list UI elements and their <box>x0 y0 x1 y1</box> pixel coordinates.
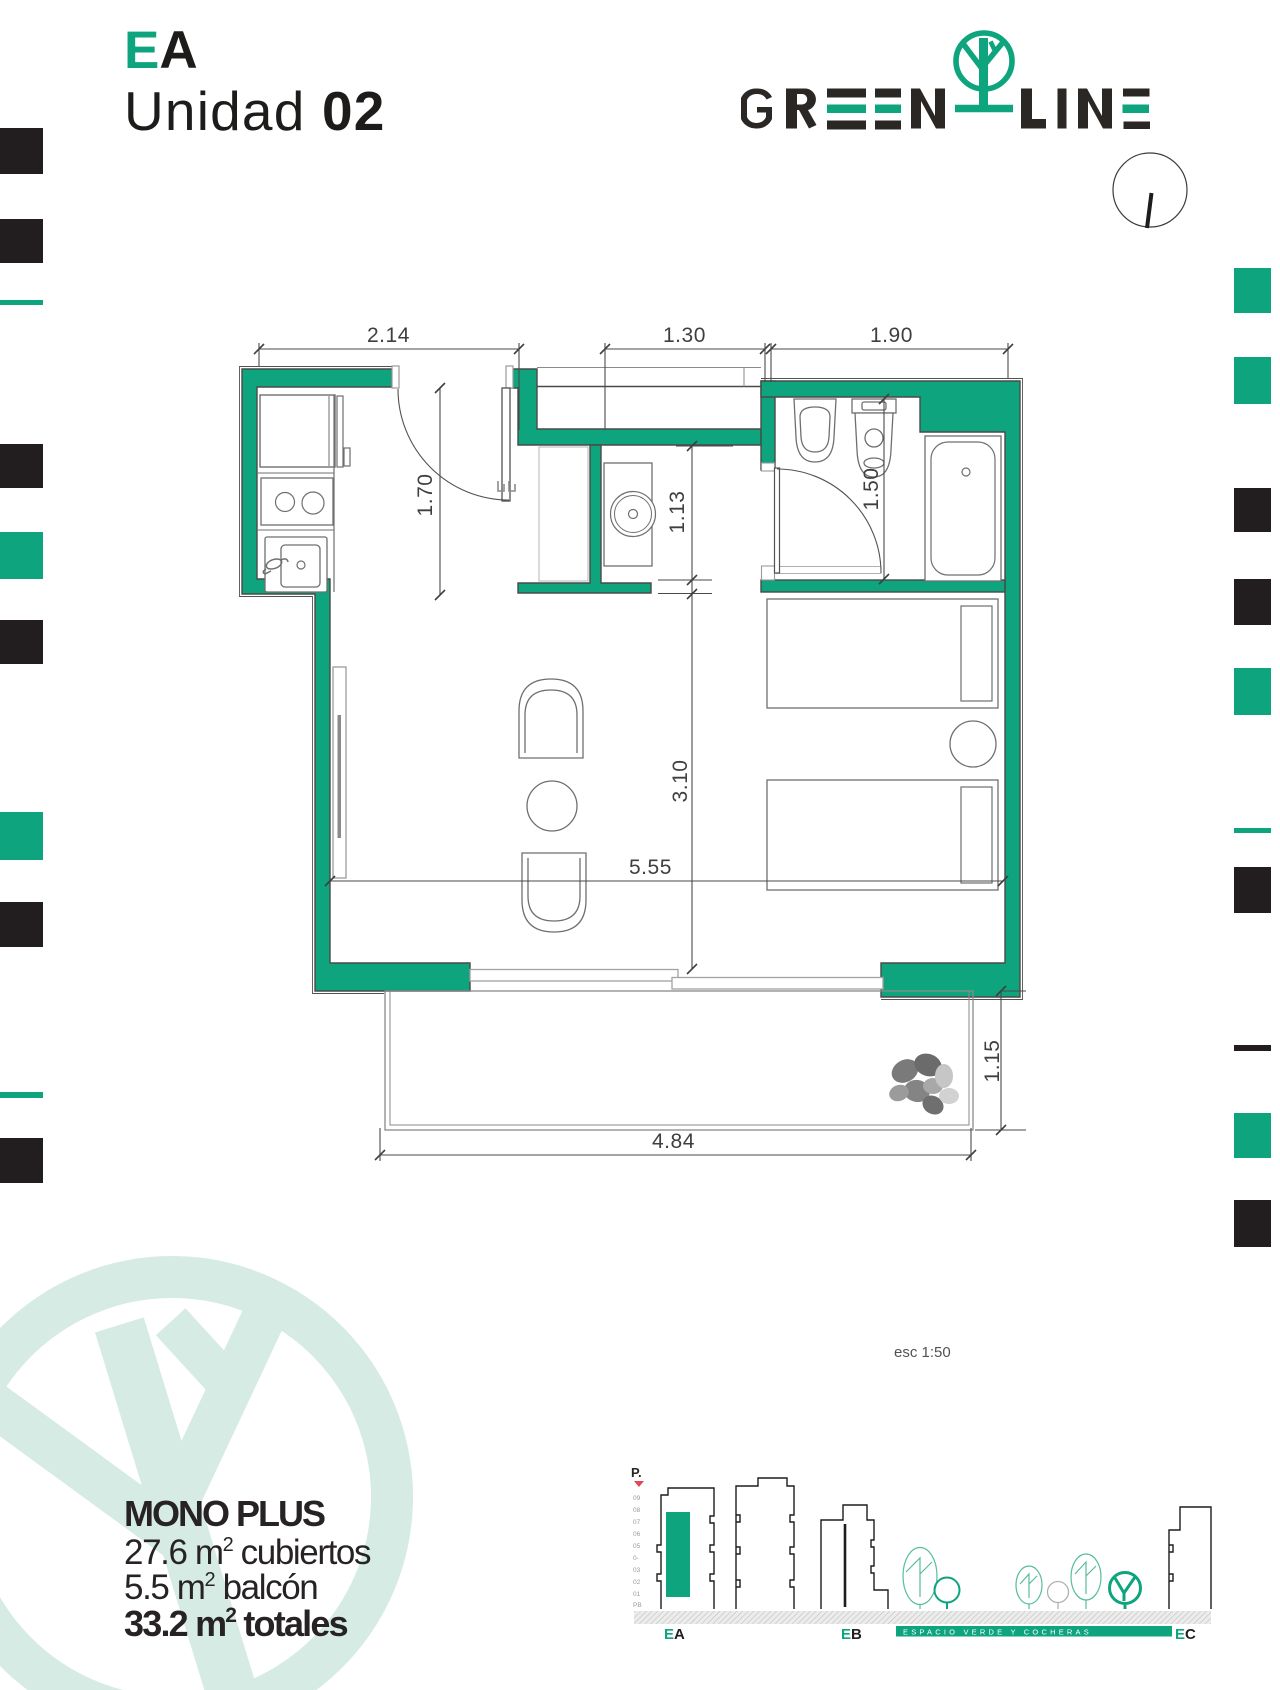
svg-text:Unidad 02: Unidad 02 <box>124 80 386 142</box>
svg-text:EB: EB <box>841 1626 862 1643</box>
svg-text:EA: EA <box>124 21 198 80</box>
svg-text:1.50: 1.50 <box>860 468 883 511</box>
svg-text:06: 06 <box>633 1531 641 1538</box>
svg-text:5.5 m2 balcón: 5.5 m2 balcón <box>124 1568 317 1607</box>
svg-text:01: 01 <box>633 1591 641 1598</box>
svg-text:1.70: 1.70 <box>414 474 437 517</box>
svg-text:PB: PB <box>633 1602 642 1609</box>
svg-text:05: 05 <box>633 1543 641 1550</box>
svg-text:03: 03 <box>633 1567 641 1574</box>
svg-text:EA: EA <box>664 1626 685 1643</box>
svg-text:EC: EC <box>1175 1626 1196 1643</box>
svg-text:0-: 0- <box>633 1555 639 1562</box>
svg-text:P.: P. <box>631 1465 642 1480</box>
svg-text:ESPACIO VERDE Y COCHERAS: ESPACIO VERDE Y COCHERAS <box>903 1628 1092 1637</box>
svg-text:1.30: 1.30 <box>663 324 706 347</box>
svg-text:02: 02 <box>633 1579 641 1586</box>
svg-text:1.90: 1.90 <box>870 324 913 347</box>
svg-text:esc 1:50: esc 1:50 <box>894 1344 951 1361</box>
svg-text:09: 09 <box>633 1495 641 1502</box>
svg-text:1.15: 1.15 <box>981 1040 1004 1083</box>
svg-text:4.84: 4.84 <box>652 1130 695 1153</box>
svg-text:2.14: 2.14 <box>367 324 410 347</box>
svg-text:07: 07 <box>633 1519 641 1526</box>
svg-text:27.6 m2 cubiertos: 27.6 m2 cubiertos <box>124 1533 371 1572</box>
svg-text:3.10: 3.10 <box>669 760 692 803</box>
svg-text:33.2 m2 totales: 33.2 m2 totales <box>124 1603 348 1644</box>
svg-text:08: 08 <box>633 1507 641 1514</box>
svg-text:MONO PLUS: MONO PLUS <box>124 1493 325 1534</box>
svg-text:1.13: 1.13 <box>666 491 689 534</box>
svg-text:5.55: 5.55 <box>629 856 672 879</box>
